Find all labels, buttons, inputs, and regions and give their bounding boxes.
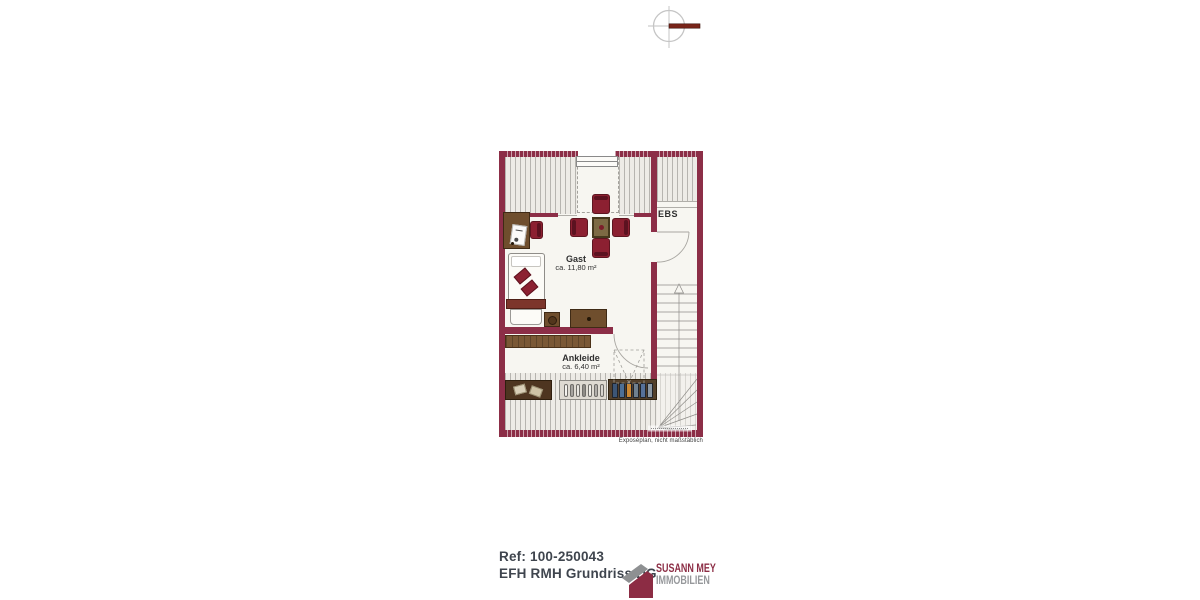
stair-direction-arrow-icon: [675, 284, 684, 293]
brand-logo-text: SUSANN MEY IMMOBILIEN: [656, 563, 733, 587]
stairs: [657, 284, 697, 430]
plan-linework: [499, 151, 703, 437]
compass-needle: [669, 24, 700, 28]
room-label-gast: Gast ca. 11,80 m²: [531, 254, 621, 272]
door-landing: [657, 232, 689, 262]
brand-name-line1: SUSANN MEY: [656, 563, 716, 575]
brand-name-line2: IMMOBILIEN: [656, 575, 716, 587]
room-label-ebs: EBS: [648, 209, 688, 219]
floorplan: Gast ca. 11,80 m² Ankleide ca. 6,40 m² E…: [499, 151, 703, 437]
watermark-strip: [648, 426, 692, 432]
room-label-ankleide: Ankleide ca. 6,40 m²: [536, 353, 626, 371]
brand-logo-house-icon: [622, 562, 653, 598]
room-area: ca. 11,80 m²: [531, 264, 621, 272]
compass-icon: [628, 2, 712, 54]
plan-disclaimer: Exposéplan, nicht maßstäblich: [499, 438, 703, 444]
room-area: ca. 6,40 m²: [536, 363, 626, 371]
